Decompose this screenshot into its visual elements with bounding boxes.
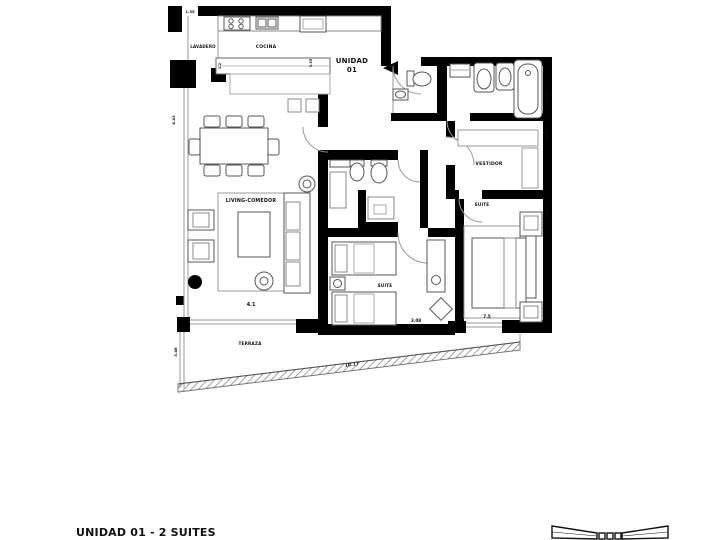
bath-cabinet bbox=[330, 172, 346, 208]
double-bed bbox=[472, 238, 526, 308]
chair bbox=[226, 165, 242, 176]
chair bbox=[430, 298, 453, 321]
sink-icon bbox=[350, 163, 364, 181]
main-suite-furniture bbox=[464, 212, 542, 322]
floor-plan-page: LAVADERO COCINA UNIDAD 01 LIVING-COMEDOR… bbox=[0, 0, 720, 540]
living-furniture bbox=[188, 176, 315, 293]
dim-kitchen-right: 5.35 bbox=[309, 58, 313, 67]
toilet-icon bbox=[371, 163, 387, 183]
chair bbox=[204, 165, 220, 176]
chair bbox=[204, 116, 220, 127]
chair bbox=[268, 139, 279, 155]
vestidor-closets bbox=[458, 130, 538, 188]
dim-bath-right: 2.9 bbox=[544, 92, 549, 99]
room-label-suite-2: SUITE bbox=[378, 283, 393, 288]
dim-suite-main: 7.5 bbox=[483, 314, 491, 319]
dining-set bbox=[189, 116, 279, 176]
dim-suite-right: 4.30 bbox=[544, 207, 549, 217]
unit-label-line1: UNIDAD bbox=[336, 57, 368, 65]
breakfast-bar bbox=[230, 74, 330, 94]
fridge-icon bbox=[300, 16, 326, 32]
bar-stool bbox=[288, 99, 301, 112]
room-label-suite-main: SUITE bbox=[475, 202, 490, 207]
stove-icon bbox=[224, 17, 250, 30]
chair bbox=[189, 139, 200, 155]
room-label-vestidor: VESTIDOR bbox=[475, 161, 503, 167]
room-label-living-comedor: LIVING-COMEDOR bbox=[226, 198, 277, 204]
coffee-table bbox=[238, 212, 270, 257]
closet bbox=[522, 148, 538, 188]
plan-caption: UNIDAD 01 - 2 SUITES bbox=[76, 526, 216, 539]
sofa bbox=[284, 193, 310, 293]
dim-kitchen-left: 1.2 bbox=[218, 62, 222, 69]
bar-stool bbox=[306, 99, 319, 112]
chair bbox=[248, 116, 264, 127]
ottoman bbox=[299, 176, 315, 192]
unit-label-line2: 01 bbox=[347, 66, 357, 74]
single-bed bbox=[332, 242, 396, 275]
single-bed bbox=[332, 292, 396, 325]
dim-vestidor-right: 4.35 bbox=[544, 129, 549, 139]
dining-table bbox=[200, 128, 268, 164]
dim-living: 4.1 bbox=[247, 302, 256, 308]
chair bbox=[248, 165, 264, 176]
company-logo-icon bbox=[551, 524, 669, 540]
floor-plan-drawing: LAVADERO COCINA UNIDAD 01 LIVING-COMEDOR… bbox=[0, 0, 720, 540]
room-label-lavadero: LAVADERO bbox=[190, 44, 216, 49]
column bbox=[188, 275, 202, 289]
nightstand bbox=[520, 302, 542, 322]
room-label-cocina: COCINA bbox=[256, 44, 277, 50]
bath-shelf bbox=[330, 160, 350, 167]
chair bbox=[226, 116, 242, 127]
powder-room-fixtures bbox=[393, 71, 431, 100]
nightstand bbox=[330, 277, 345, 290]
dim-top-left: 1.35 bbox=[185, 9, 195, 14]
toilet-icon bbox=[413, 72, 431, 86]
dim-left-wall: 4.43 bbox=[171, 115, 176, 125]
side-table bbox=[255, 272, 273, 290]
closet bbox=[458, 130, 538, 146]
shower-tray-icon bbox=[368, 197, 394, 219]
dim-terrace-left: 3.48 bbox=[173, 347, 178, 357]
headboard bbox=[526, 236, 536, 298]
main-bath-fixtures bbox=[450, 60, 542, 118]
dim-suite2: 3.08 bbox=[411, 318, 421, 323]
room-label-terraza: TERRAZA bbox=[238, 341, 262, 346]
